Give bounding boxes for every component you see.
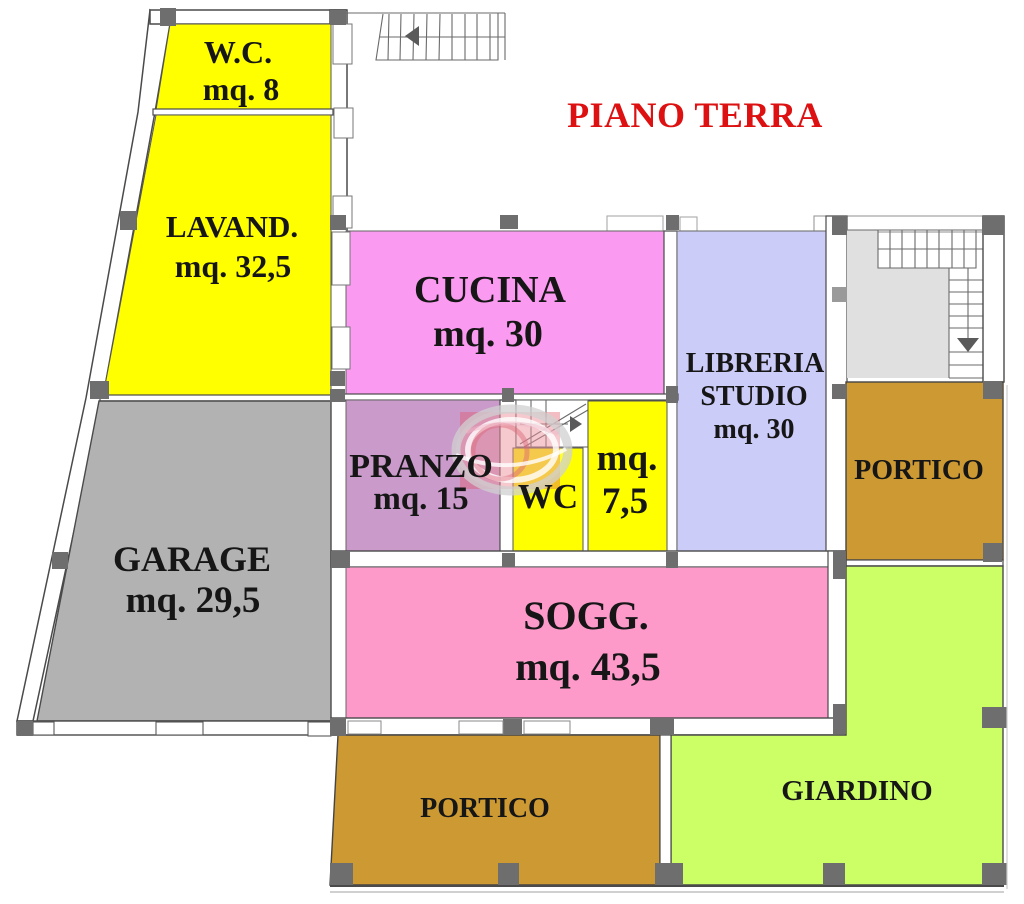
svg-text:7,5: 7,5 <box>602 481 648 522</box>
svg-text:mq.: mq. <box>597 438 658 479</box>
svg-text:LAVAND.: LAVAND. <box>166 209 298 244</box>
svg-text:W.C.: W.C. <box>204 34 272 70</box>
svg-text:PORTICO: PORTICO <box>420 793 550 824</box>
svg-text:mq. 8: mq. 8 <box>203 71 279 107</box>
svg-text:CUCINA: CUCINA <box>414 269 567 311</box>
svg-text:SOGG.: SOGG. <box>523 593 649 638</box>
svg-text:GIARDINO: GIARDINO <box>781 775 932 807</box>
svg-text:PORTICO: PORTICO <box>854 455 984 486</box>
svg-text:mq. 15: mq. 15 <box>373 481 468 517</box>
svg-text:PIANO TERRA: PIANO TERRA <box>567 95 823 135</box>
svg-text:PRANZO: PRANZO <box>349 448 493 485</box>
svg-text:mq. 43,5: mq. 43,5 <box>515 644 661 689</box>
svg-text:LIBRERIA: LIBRERIA <box>686 348 825 379</box>
svg-text:mq. 30: mq. 30 <box>714 414 795 445</box>
svg-text:STUDIO: STUDIO <box>700 381 807 412</box>
svg-text:GARAGE: GARAGE <box>113 539 271 579</box>
svg-text:mq. 30: mq. 30 <box>433 313 543 355</box>
svg-text:mq. 29,5: mq. 29,5 <box>126 580 261 621</box>
svg-text:mq. 32,5: mq. 32,5 <box>175 248 291 284</box>
svg-text:WC: WC <box>518 477 578 516</box>
